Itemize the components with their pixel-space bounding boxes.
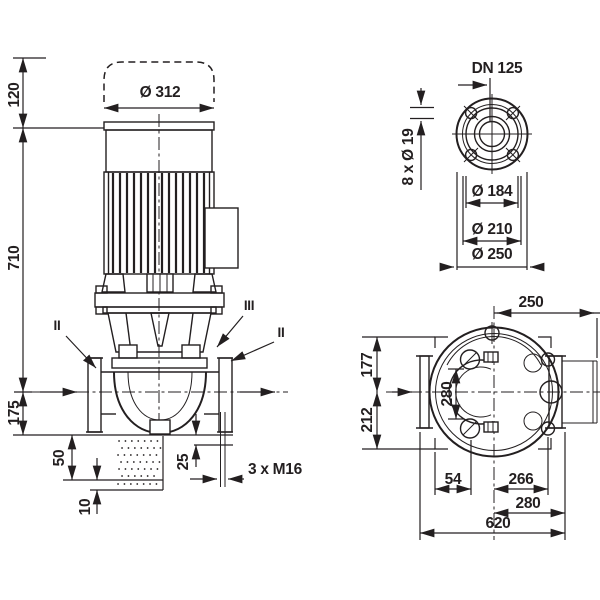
motor [102,122,238,292]
flange-top-view: DN 125 8 x Ø 19 Ø 184 Ø 210 Ø 250 [400,60,538,270]
dim-bolt-circle: Ø 210 [472,221,513,238]
dim-port-span: 280 [439,382,456,407]
pump-dimensional-drawing: Ø 312 120 710 175 [0,0,600,600]
foundation [63,436,233,490]
flange-diameter-dimensions: Ø 184 Ø 210 Ø 250 [446,172,538,270]
label-dn: DN 125 [472,60,523,77]
dim-height-710: 710 [6,246,23,271]
suction-flange [86,358,103,432]
dim-foot-span: 266 [509,471,535,488]
front-elevation-view: Ø 312 120 710 175 [6,58,303,515]
dim-foot-offset: 54 [445,471,462,488]
dim-center-to-face: 250 [519,294,544,311]
dim-gap-25: 25 [175,453,192,470]
dim-overall-length: 620 [486,515,511,532]
dim-motor-diameter: Ø 312 [140,84,181,101]
dim-grout-10: 10 [77,499,94,516]
dim-half-back: 212 [359,408,376,433]
dim-hub: Ø 184 [472,183,513,200]
dim-axis-175: 175 [6,400,23,426]
dim-foundation-50: 50 [51,450,68,467]
section-mark-left: II [54,318,61,333]
label-anchor-bolts: 3 x M16 [248,461,303,478]
dim-clearance-120: 120 [6,83,23,108]
dim-outer: Ø 250 [472,246,513,263]
anchor-bolt [221,412,226,487]
terminal-box [205,208,238,268]
dim-half-front: 177 [359,353,376,378]
section-mark-mid: III [244,298,254,313]
plan-bolt-holes [461,322,555,438]
dim-flange-span: 280 [516,495,541,512]
plan-bottom-dimensions: 54 266 280 620 [420,432,565,540]
plan-top-view: 280 250 177 212 54 266 280 620 [359,294,600,540]
section-mark-right: II [278,325,285,340]
drain-plug [150,420,170,434]
label-bolt-holes: 8 x Ø 19 [400,128,417,186]
